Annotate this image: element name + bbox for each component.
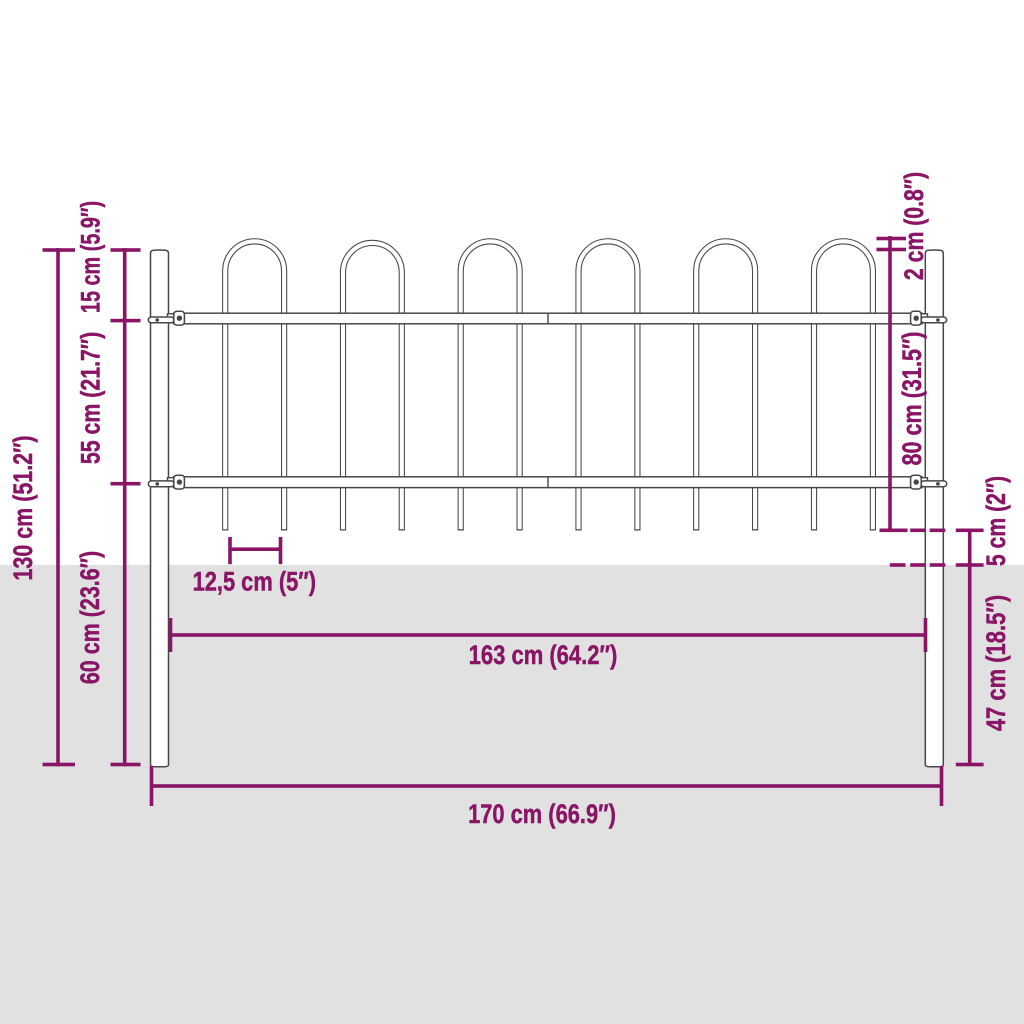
svg-text:170 cm (66.9″): 170 cm (66.9″) <box>468 800 616 830</box>
svg-text:80 cm (31.5″): 80 cm (31.5″) <box>898 332 928 466</box>
svg-text:12,5 cm (5″): 12,5 cm (5″) <box>193 567 316 597</box>
svg-text:47 cm (18.5″): 47 cm (18.5″) <box>982 595 1012 731</box>
svg-text:55 cm (21.7″): 55 cm (21.7″) <box>76 332 106 464</box>
svg-text:5 cm (2″): 5 cm (2″) <box>981 476 1011 566</box>
svg-text:60 cm (23.6″): 60 cm (23.6″) <box>76 551 106 684</box>
svg-text:15 cm (5.9″): 15 cm (5.9″) <box>77 201 107 313</box>
svg-text:130 cm (51.2″): 130 cm (51.2″) <box>9 435 39 580</box>
svg-text:163 cm (64.2″): 163 cm (64.2″) <box>469 641 618 671</box>
svg-text:2 cm (0.8″): 2 cm (0.8″) <box>899 172 929 280</box>
